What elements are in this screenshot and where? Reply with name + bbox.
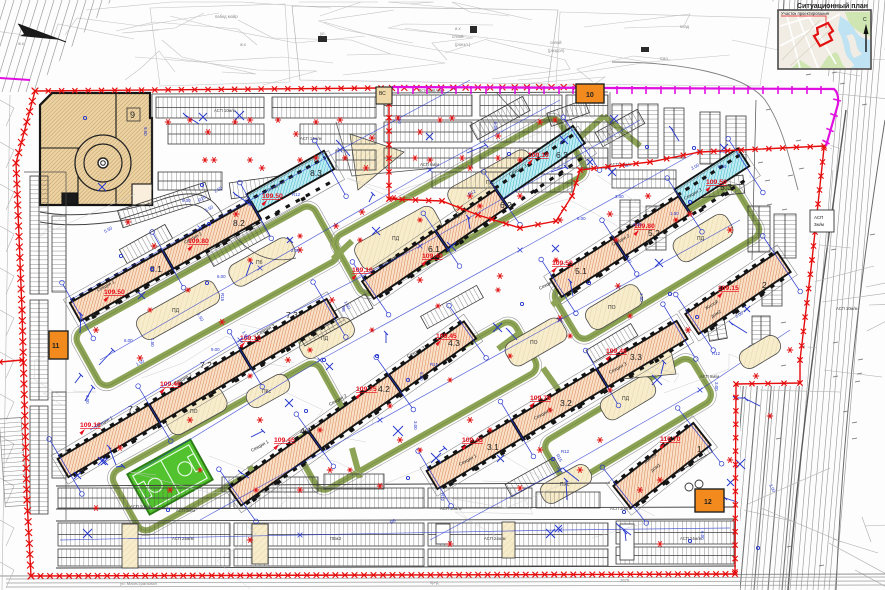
svg-text:109.50: 109.50 <box>706 179 727 186</box>
svg-text:6.00: 6.00 <box>700 531 705 540</box>
svg-text:ПО: ПО <box>608 305 616 311</box>
svg-text:9.00: 9.00 <box>419 372 424 381</box>
svg-text:3.1: 3.1 <box>487 442 499 452</box>
svg-text:109.45: 109.45 <box>436 333 457 340</box>
svg-text:АСП 9м/м: АСП 9м/м <box>700 374 719 379</box>
svg-text:Пб: Пб <box>256 260 263 266</box>
svg-text:1.50: 1.50 <box>639 293 644 302</box>
svg-text:АСП 14м/м: АСП 14м/м <box>300 136 322 141</box>
svg-text:сляой: сляой <box>550 40 562 45</box>
svg-text:ул.: ул. <box>320 31 326 36</box>
svg-text:3м/м: 3м/м <box>814 222 824 227</box>
svg-text:АСП 10м/м: АСП 10м/м <box>130 504 152 509</box>
svg-text:R15: R15 <box>430 362 439 367</box>
svg-text:4.2: 4.2 <box>378 384 390 394</box>
svg-text:ПД: ПД <box>172 308 180 314</box>
svg-text:АСП: АСП <box>814 215 823 220</box>
svg-text:ПКс: ПКс <box>262 389 272 395</box>
svg-text:ПО: ПО <box>190 409 198 415</box>
svg-text:R12: R12 <box>712 351 721 356</box>
svg-text:109.15: 109.15 <box>718 285 739 292</box>
svg-text:сляой: сляой <box>452 34 464 39</box>
svg-text:110.70: 110.70 <box>660 436 681 443</box>
svg-text:3.00: 3.00 <box>714 382 719 391</box>
svg-text:6.2: 6.2 <box>500 200 512 210</box>
svg-text:АСП 10м/м: АСП 10м/м <box>214 108 236 113</box>
svg-text:7.2: 7.2 <box>200 360 212 370</box>
svg-text:9: 9 <box>130 110 135 120</box>
svg-text:R12: R12 <box>561 449 570 454</box>
svg-text:9.00: 9.00 <box>85 395 90 404</box>
svg-text:9.00: 9.00 <box>143 127 148 136</box>
svg-text:6.00: 6.00 <box>217 274 226 279</box>
svg-text:ПД: ПД <box>321 336 329 342</box>
svg-text:1.50: 1.50 <box>670 211 679 216</box>
svg-text:(раздол): (раздол) <box>548 48 565 53</box>
svg-text:1: 1 <box>697 444 702 454</box>
svg-text:ПО: ПО <box>530 340 538 346</box>
svg-text:8.1: 8.1 <box>150 264 162 274</box>
svg-text:Ситуационный план: Ситуационный план <box>797 2 868 10</box>
svg-text:и.х: и.х <box>455 26 462 31</box>
svg-text:ж.к: ж.к <box>240 42 246 47</box>
svg-text:8.3: 8.3 <box>310 168 322 178</box>
svg-text:Сял: Сял <box>660 56 668 61</box>
svg-text:12: 12 <box>704 499 712 506</box>
svg-text:2: 2 <box>762 280 767 290</box>
svg-text:R12: R12 <box>440 493 445 502</box>
svg-text:9.00: 9.00 <box>182 198 191 203</box>
svg-text:6.00: 6.00 <box>124 338 133 343</box>
svg-text:8.2: 8.2 <box>233 218 245 228</box>
svg-text:АСП 3м/м: АСП 3м/м <box>176 508 195 513</box>
svg-text:ПД: ПД <box>622 396 630 402</box>
svg-text:109.50: 109.50 <box>104 289 125 296</box>
svg-text:Участок проектирования: Участок проектирования <box>781 11 829 16</box>
svg-text:109.10: 109.10 <box>528 152 549 159</box>
svg-text:6.00: 6.00 <box>577 216 586 221</box>
svg-text:ВС: ВС <box>379 91 386 97</box>
svg-text:3.00: 3.00 <box>413 421 418 430</box>
svg-text:109.48: 109.48 <box>606 348 627 355</box>
svg-text:(ронзл.): (ронзл.) <box>455 42 471 47</box>
svg-text:5.1: 5.1 <box>575 266 587 276</box>
svg-text:6.3: 6.3 <box>556 150 568 160</box>
svg-text:6.00: 6.00 <box>493 122 498 131</box>
svg-text:7.1: 7.1 <box>128 404 140 414</box>
svg-text:109.45: 109.45 <box>274 437 295 444</box>
svg-text:2.08: 2.08 <box>291 248 300 253</box>
svg-text:АСП 10м/м: АСП 10м/м <box>610 506 632 511</box>
svg-text:2575: 2575 <box>620 578 630 583</box>
svg-text:109.50: 109.50 <box>262 193 283 200</box>
svg-text:ж.к: ж.к <box>18 41 24 46</box>
svg-text:1.50: 1.50 <box>150 338 155 347</box>
svg-text:ПВжЗ: ПВжЗ <box>330 536 342 541</box>
svg-text:ПД: ПД <box>697 236 705 242</box>
svg-text:6.00: 6.00 <box>718 164 727 169</box>
svg-text:АСП 24м/м: АСП 24м/м <box>680 536 702 541</box>
svg-text:АСП 24м/м: АСП 24м/м <box>484 536 506 541</box>
svg-text:пабед мойр: пабед мойр <box>215 14 238 19</box>
svg-text:С: С <box>863 17 867 23</box>
svg-text:109.10: 109.10 <box>352 267 373 274</box>
svg-text:ПД: ПД <box>392 236 400 242</box>
svg-text:109.40: 109.40 <box>422 253 443 260</box>
svg-text:R8: R8 <box>341 306 346 312</box>
svg-text:3.00: 3.00 <box>633 222 642 227</box>
svg-text:4.1: 4.1 <box>300 426 312 436</box>
svg-text:11: 11 <box>52 343 60 350</box>
svg-text:R12: R12 <box>292 192 301 197</box>
svg-text:109.78: 109.78 <box>530 395 551 402</box>
svg-text:109.80: 109.80 <box>188 238 209 245</box>
svg-text:клад: клад <box>680 24 690 29</box>
svg-text:АСП 10м/м: АСП 10м/м <box>836 306 858 311</box>
svg-text:R15: R15 <box>220 293 225 302</box>
svg-text:10: 10 <box>586 92 594 99</box>
svg-text:9.00: 9.00 <box>211 347 220 352</box>
svg-text:3.3: 3.3 <box>630 352 642 362</box>
svg-text:пр-д: пр-д <box>430 580 439 585</box>
svg-text:109.45: 109.45 <box>462 437 483 444</box>
svg-text:АСП 24м/м: АСП 24м/м <box>172 536 194 541</box>
svg-text:109.75: 109.75 <box>356 386 377 393</box>
svg-text:ул. Магистральная: ул. Магистральная <box>120 581 157 586</box>
svg-text:3.2: 3.2 <box>560 398 572 408</box>
